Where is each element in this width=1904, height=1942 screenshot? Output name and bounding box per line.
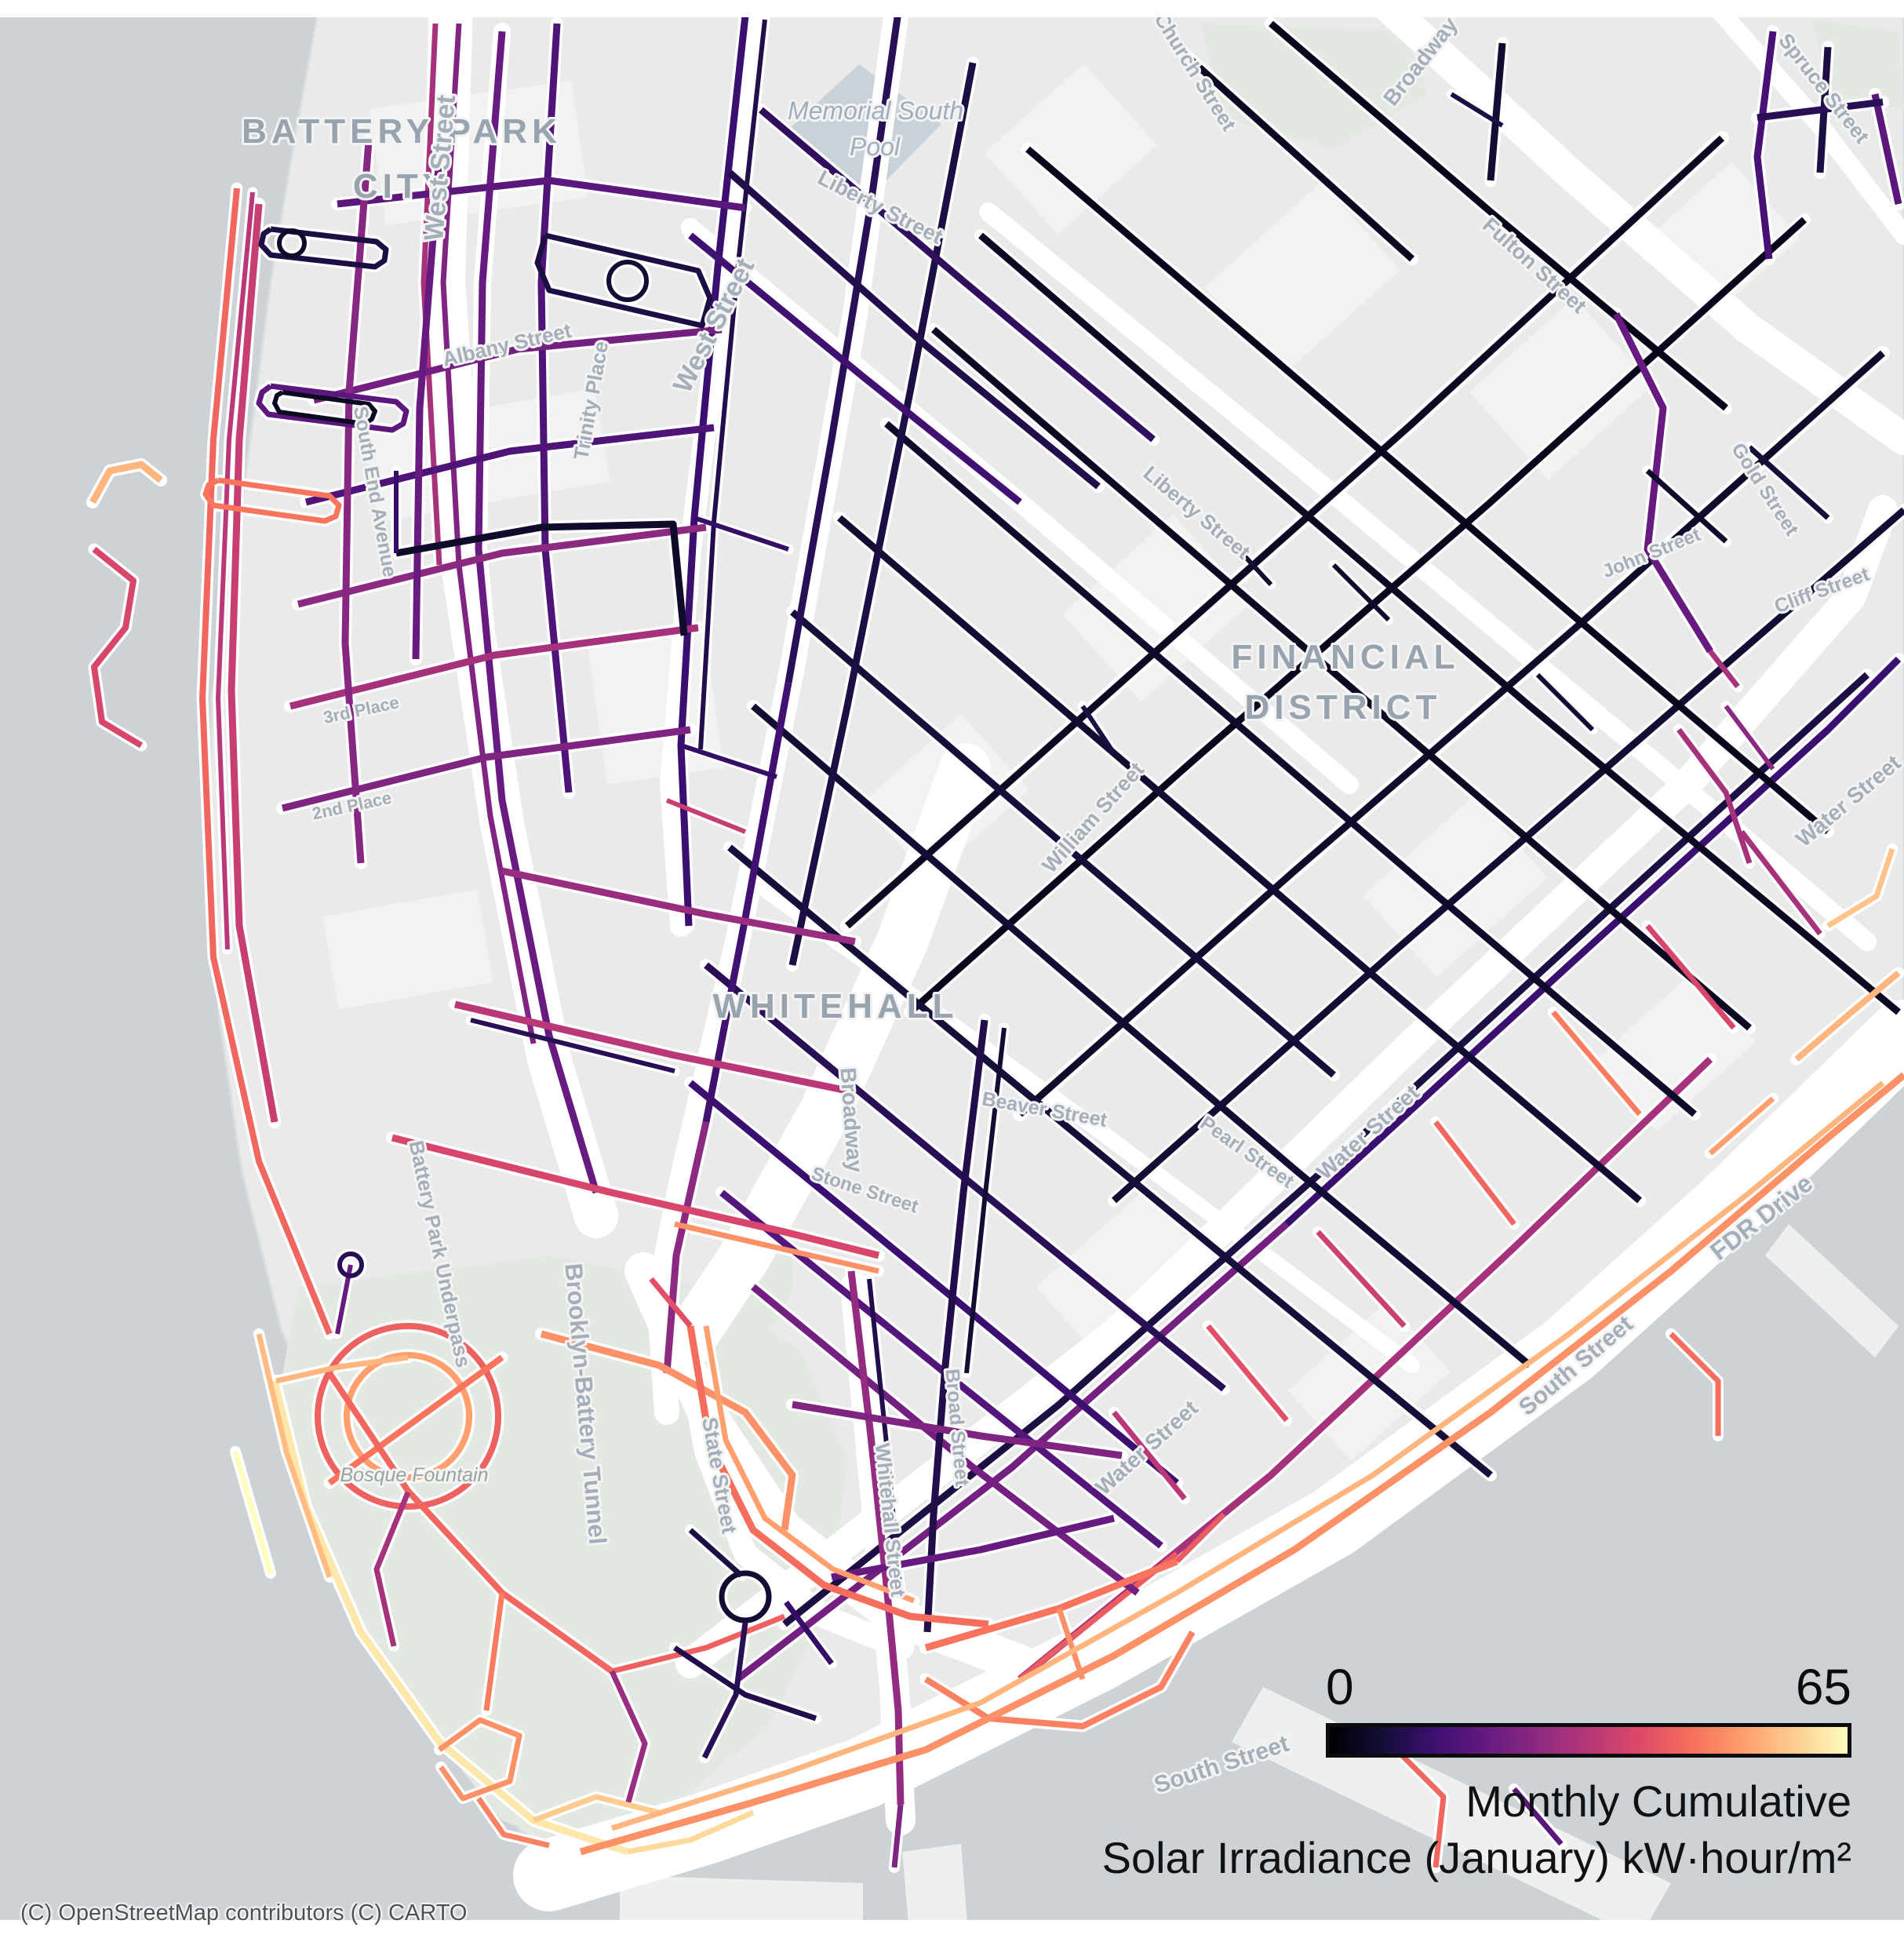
district-label: DISTRICT (1245, 688, 1442, 727)
solar-irradiance-map-screenshot: BATTERY PARKCITYFINANCIALDISTRICTWHITEHA… (0, 0, 1904, 1942)
legend-caption-line1: Monthly Cumulative (1102, 1773, 1851, 1830)
map-canvas[interactable]: BATTERY PARKCITYFINANCIALDISTRICTWHITEHA… (0, 17, 1904, 1920)
legend-min-value: 0 (1326, 1662, 1354, 1712)
legend-colorbar (1326, 1723, 1851, 1758)
street-label: Memorial South (788, 97, 963, 125)
district-label: FINANCIAL (1231, 638, 1459, 676)
map-attribution: (C) OpenStreetMap contributors (C) CARTO (20, 1900, 467, 1926)
street-label: Pool (850, 133, 901, 161)
street-label: Bosque Fountain (340, 1464, 488, 1486)
legend: 0 65 Monthly Cumulative Solar Irradiance… (1326, 1662, 1851, 1758)
legend-caption-line2: Solar Irradiance (January) kW·hour/m² (1102, 1830, 1851, 1886)
district-label: WHITEHALL (712, 987, 958, 1026)
map-viewport[interactable]: BATTERY PARKCITYFINANCIALDISTRICTWHITEHA… (0, 17, 1904, 1920)
legend-max-value: 65 (1796, 1662, 1851, 1712)
legend-caption: Monthly Cumulative Solar Irradiance (Jan… (1102, 1773, 1851, 1886)
legend-scale: 0 65 (1326, 1662, 1851, 1712)
district-label: BATTERY PARK (242, 112, 562, 151)
top-margin (0, 0, 1904, 17)
